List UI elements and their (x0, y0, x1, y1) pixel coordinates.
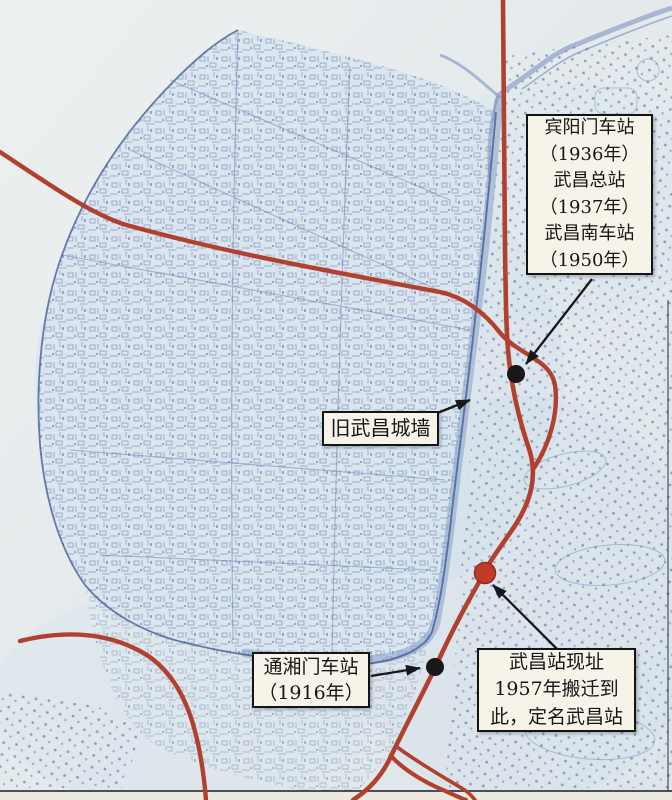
label-line: 旧武昌城墙 (324, 413, 437, 444)
label-line: 武昌站现址 (479, 649, 634, 677)
label-box-old-city-wall: 旧武昌城墙 (322, 411, 439, 446)
label-line: （1936年） (528, 142, 651, 169)
label-line: 武昌总站 (528, 168, 651, 195)
label-line: （1916年） (254, 680, 368, 706)
tongxiangmen-station-dot (426, 658, 444, 676)
label-box-tongxiangmen-station: 通湘门车站 （1916年） (252, 652, 370, 708)
label-box-wuchang-station-current: 武昌站现址 1957年搬迁到 此，定名武昌站 (477, 648, 636, 732)
label-line: （1950年） (528, 248, 651, 275)
wuchang-station-current-dot (475, 563, 496, 584)
label-line: 通湘门车站 (254, 654, 368, 680)
label-line: 宾阳门车站 (528, 115, 651, 142)
label-line: 此，定名武昌站 (479, 704, 634, 732)
label-line: 1957年搬迁到 (479, 676, 634, 704)
label-line: 武昌南车站 (528, 221, 651, 248)
label-box-binyangmen-station: 宾阳门车站 （1936年） 武昌总站 （1937年） 武昌南车站 （1950年） (526, 114, 653, 275)
binyangmen-station-dot (507, 365, 525, 383)
label-line: （1937年） (528, 195, 651, 222)
historical-map-figure: 宾阳门车站 （1936年） 武昌总站 （1937年） 武昌南车站 （1950年）… (0, 0, 672, 800)
